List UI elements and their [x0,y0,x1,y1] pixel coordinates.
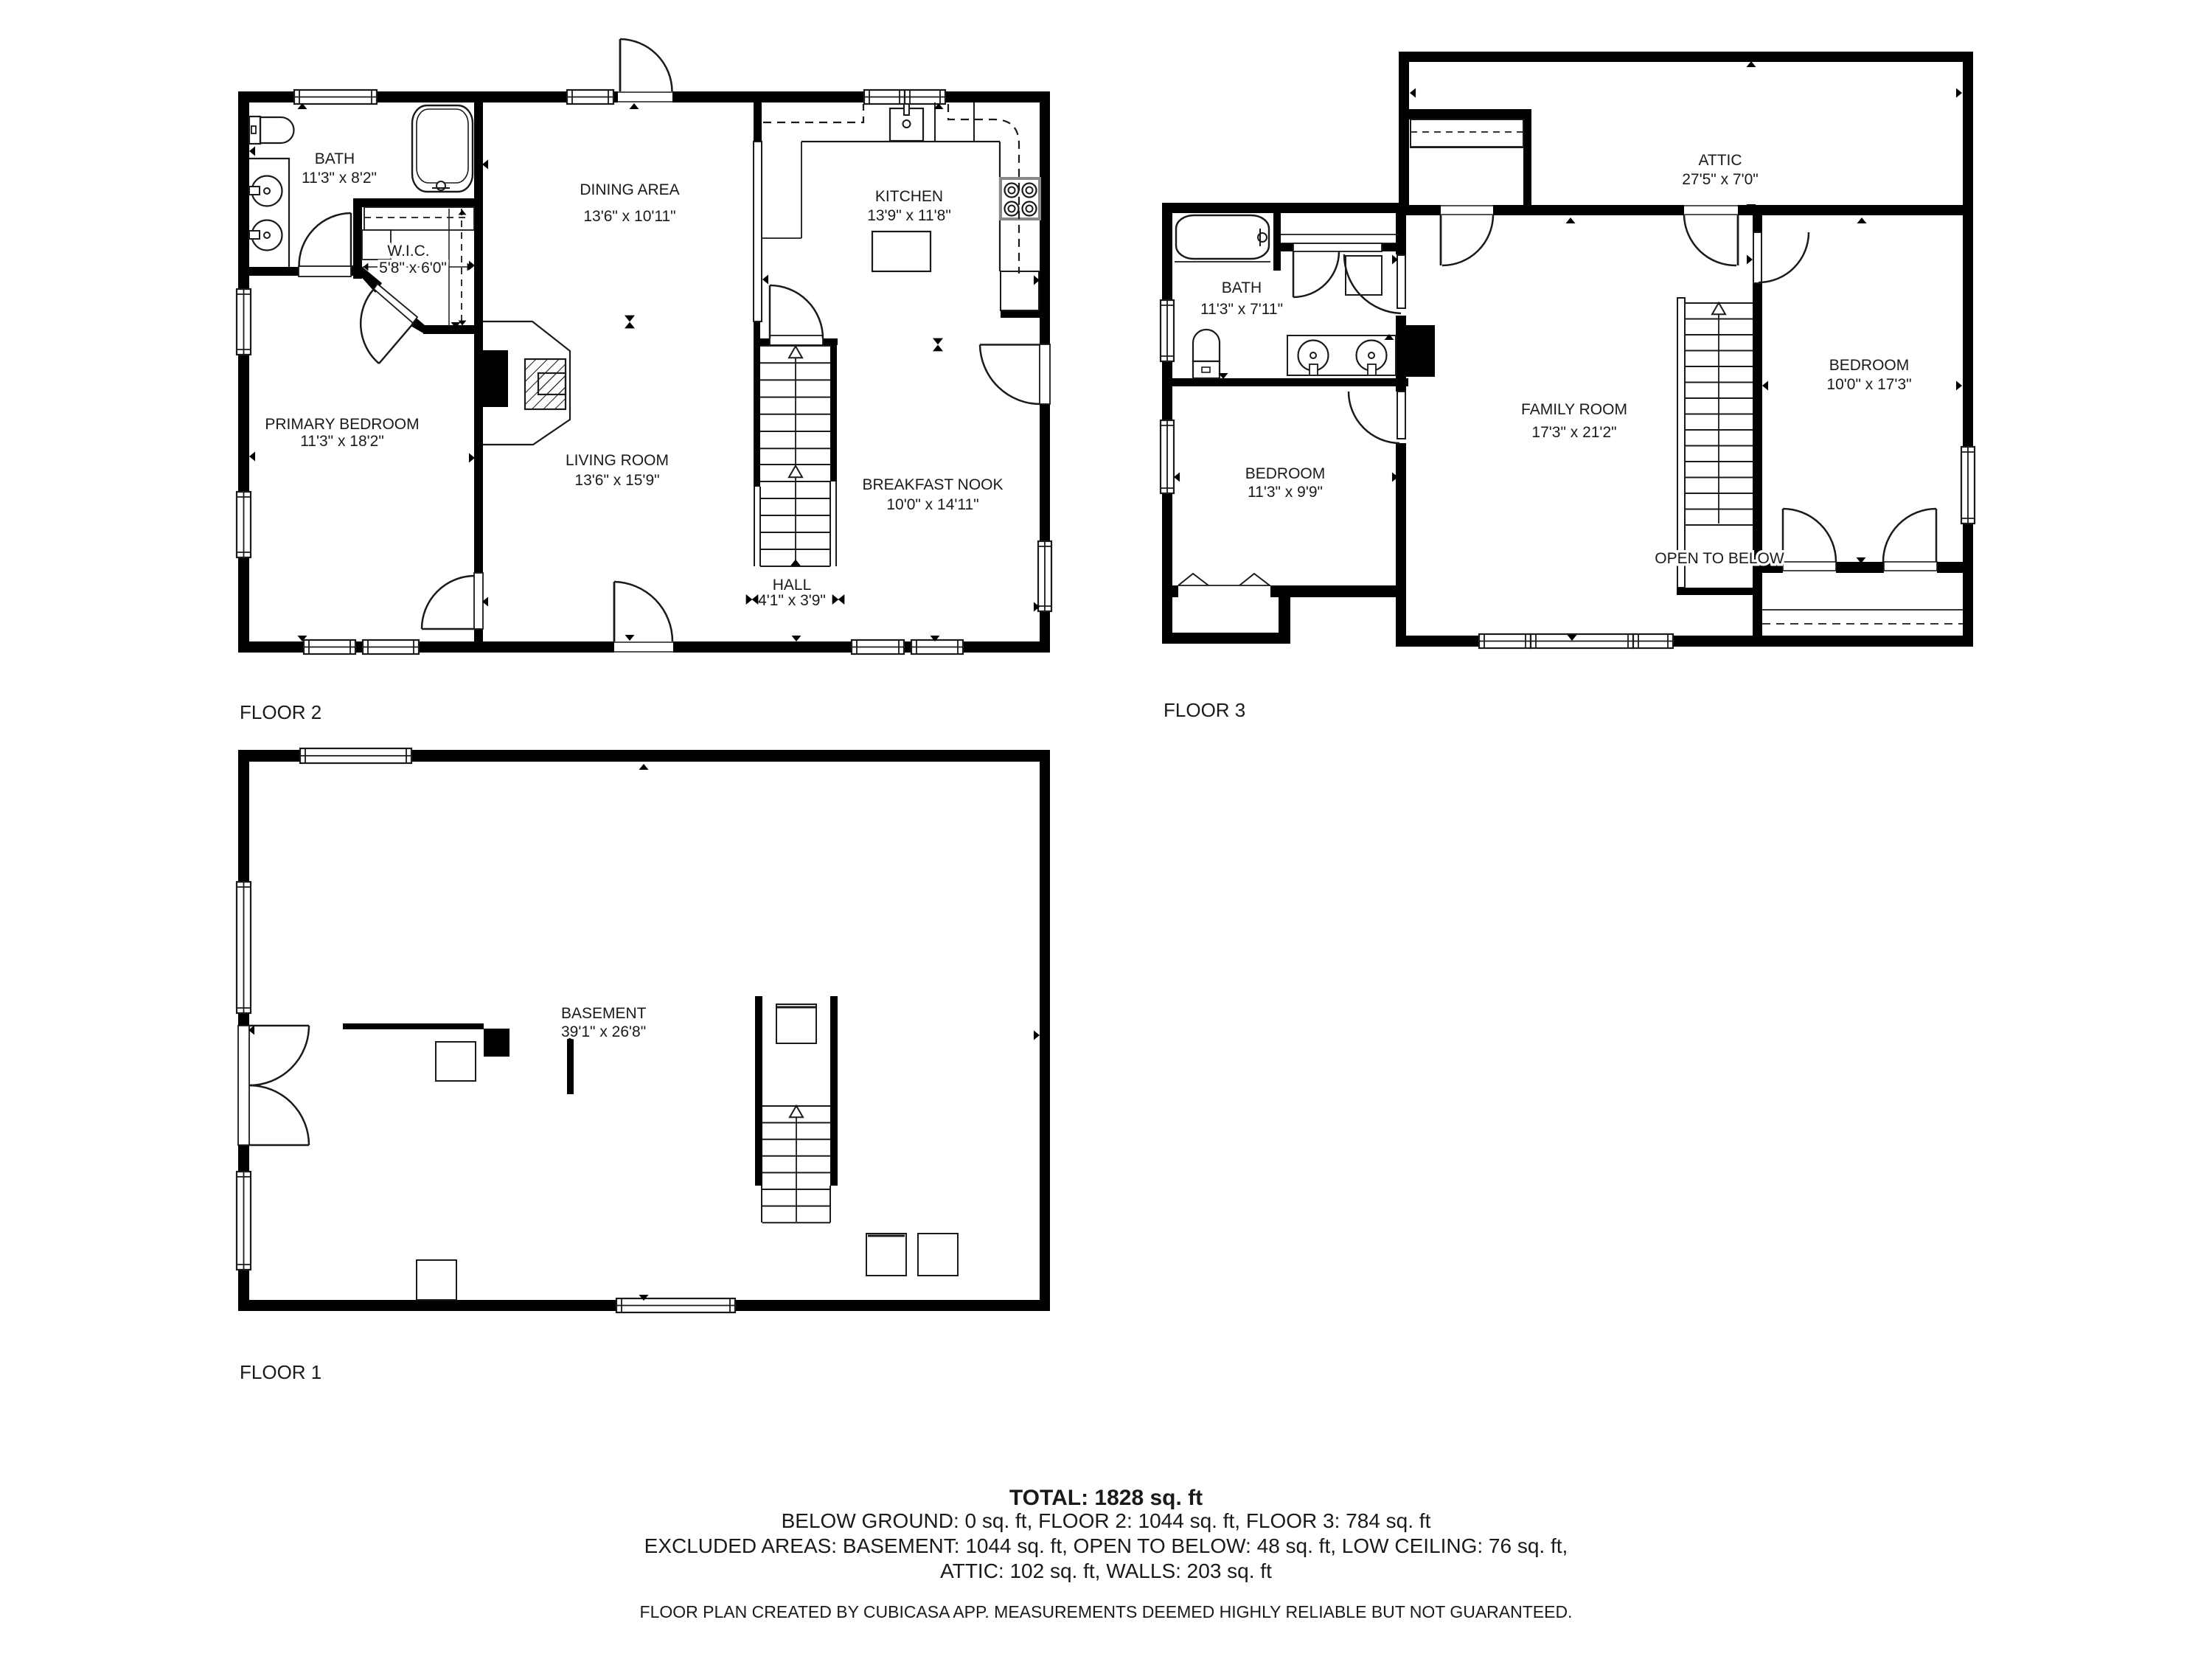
svg-text:DINING AREA: DINING AREA [580,181,679,198]
svg-text:EXCLUDED AREAS: BASEMENT: 1044: EXCLUDED AREAS: BASEMENT: 1044 sq. ft, O… [644,1534,1568,1557]
svg-text:W.I.C.: W.I.C. [387,243,429,260]
svg-text:13'9" x 11'8": 13'9" x 11'8" [867,207,951,224]
svg-text:4'1" x 3'9": 4'1" x 3'9" [758,592,826,609]
svg-text:PRIMARY BEDROOM: PRIMARY BEDROOM [265,416,419,433]
svg-text:FLOOR 1: FLOOR 1 [240,1361,321,1383]
svg-text:5'8" x 6'0": 5'8" x 6'0" [379,260,447,276]
svg-text:BASEMENT: BASEMENT [561,1005,647,1022]
svg-text:10'0" x 17'3": 10'0" x 17'3" [1826,376,1911,393]
svg-text:BEDROOM: BEDROOM [1245,465,1326,482]
svg-text:FAMILY ROOM: FAMILY ROOM [1521,401,1627,418]
svg-text:11'3" x 9'9": 11'3" x 9'9" [1248,484,1323,501]
svg-text:FLOOR 3: FLOOR 3 [1164,699,1245,721]
svg-text:11'3" x 7'11": 11'3" x 7'11" [1200,301,1283,318]
svg-text:13'6" x 15'9": 13'6" x 15'9" [574,472,659,489]
svg-text:BELOW GROUND: 0 sq. ft, FLOOR: BELOW GROUND: 0 sq. ft, FLOOR 2: 1044 sq… [782,1509,1431,1532]
svg-text:11'3" x 8'2": 11'3" x 8'2" [302,170,377,187]
svg-text:17'3" x 21'2": 17'3" x 21'2" [1531,424,1616,441]
svg-text:KITCHEN: KITCHEN [875,188,943,205]
svg-text:BATH: BATH [315,150,355,167]
svg-text:ATTIC: 102 sq. ft, WALLS: 203: ATTIC: 102 sq. ft, WALLS: 203 sq. ft [940,1559,1272,1582]
svg-text:10'0" x 14'11": 10'0" x 14'11" [886,496,978,513]
svg-text:BATH: BATH [1222,279,1262,296]
svg-text:11'3" x 18'2": 11'3" x 18'2" [300,433,384,450]
svg-text:HALL: HALL [773,577,812,594]
svg-text:TOTAL: 1828 sq. ft: TOTAL: 1828 sq. ft [1009,1486,1203,1510]
svg-text:ATTIC: ATTIC [1698,152,1742,169]
svg-text:OPEN TO BELOW: OPEN TO BELOW [1655,550,1784,567]
svg-text:39'1" x 26'8": 39'1" x 26'8" [561,1023,646,1040]
svg-text:13'6" x 10'11": 13'6" x 10'11" [583,208,675,225]
svg-text:BREAKFAST NOOK: BREAKFAST NOOK [863,476,1004,493]
svg-text:LIVING ROOM: LIVING ROOM [566,452,669,469]
svg-text:27'5" x 7'0": 27'5" x 7'0" [1682,171,1759,188]
svg-text:BEDROOM: BEDROOM [1829,357,1910,374]
svg-text:FLOOR 2: FLOOR 2 [240,701,321,723]
svg-text:FLOOR PLAN CREATED BY CUBICASA: FLOOR PLAN CREATED BY CUBICASA APP. MEAS… [640,1602,1573,1621]
